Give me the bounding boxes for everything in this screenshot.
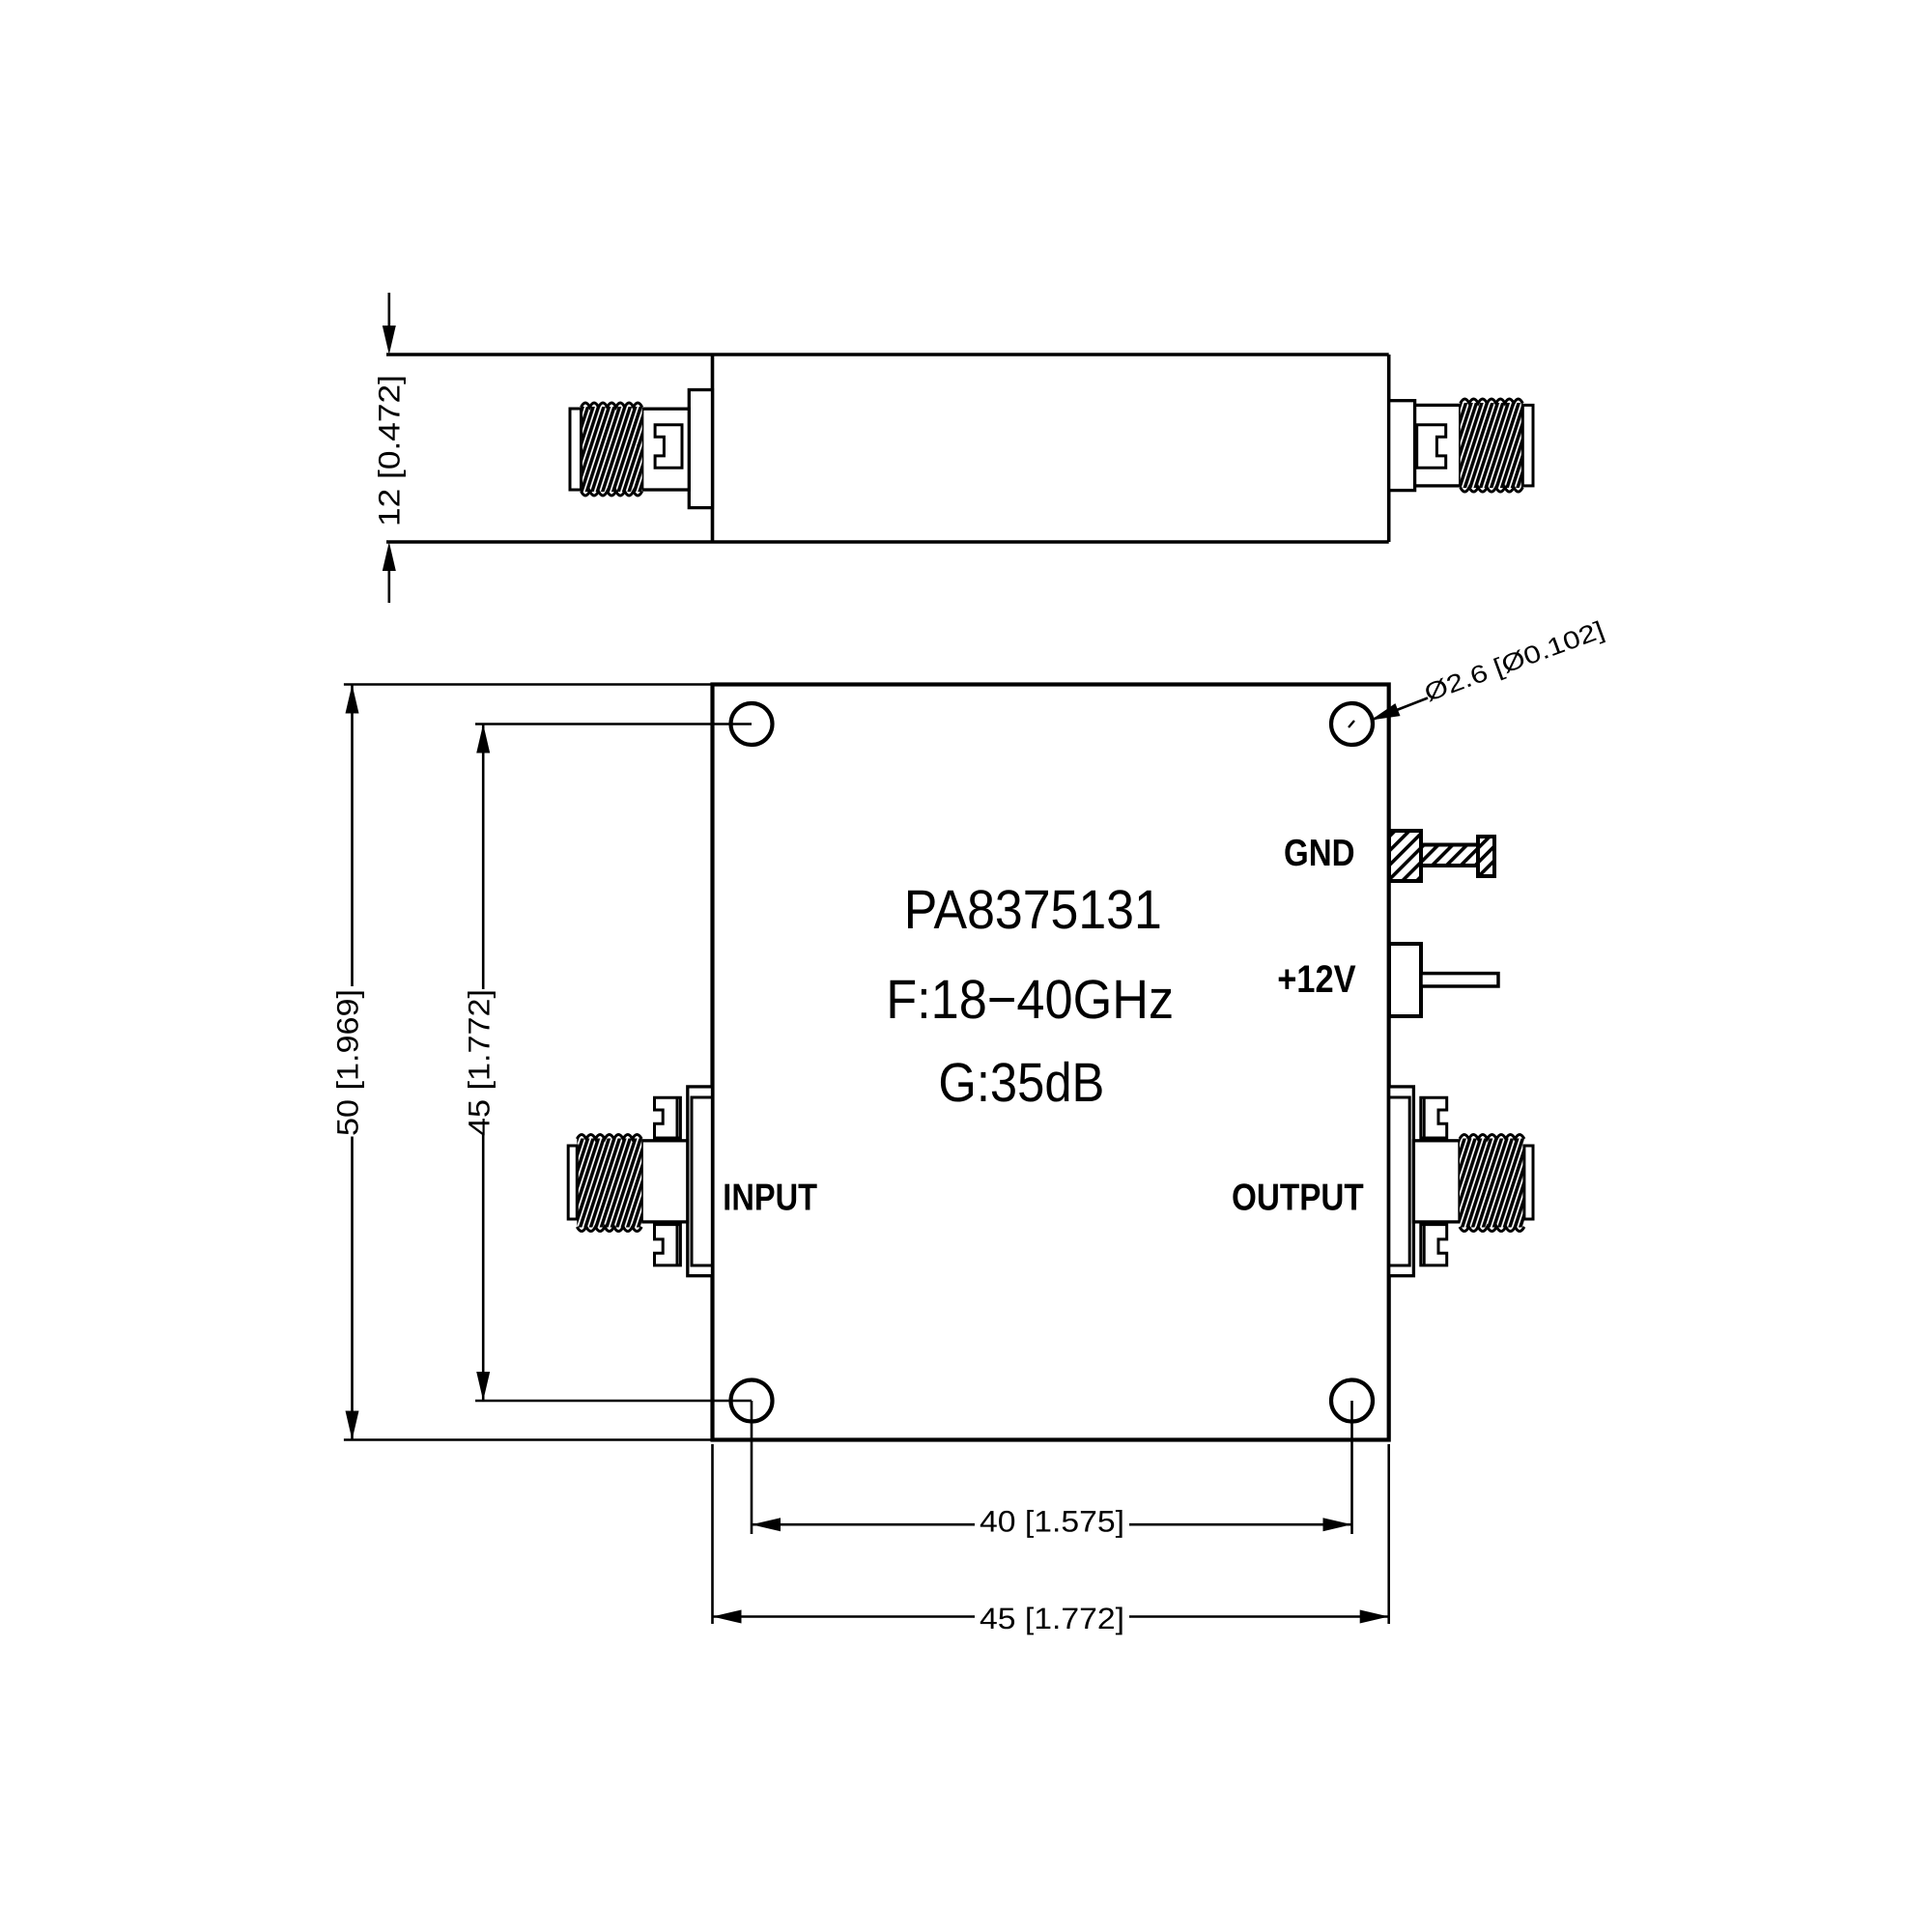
svg-text:F:18−40GHz: F:18−40GHz [886,969,1174,1031]
svg-text:G:35dB: G:35dB [938,1052,1104,1114]
svg-text:+12V: +12V [1277,958,1356,1001]
svg-text:50 [1.969]: 50 [1.969] [331,989,365,1136]
svg-text:12 [0.472]: 12 [0.472] [373,375,407,526]
svg-text:GND: GND [1284,833,1355,874]
svg-text:40 [1.575]: 40 [1.575] [980,1505,1124,1539]
svg-text:45 [1.772]: 45 [1.772] [980,1602,1124,1635]
svg-text:PA8375131: PA8375131 [904,879,1162,941]
svg-text:45 [1.772]: 45 [1.772] [463,989,497,1136]
svg-text:OUTPUT: OUTPUT [1232,1178,1364,1219]
svg-text:INPUT: INPUT [723,1178,817,1219]
